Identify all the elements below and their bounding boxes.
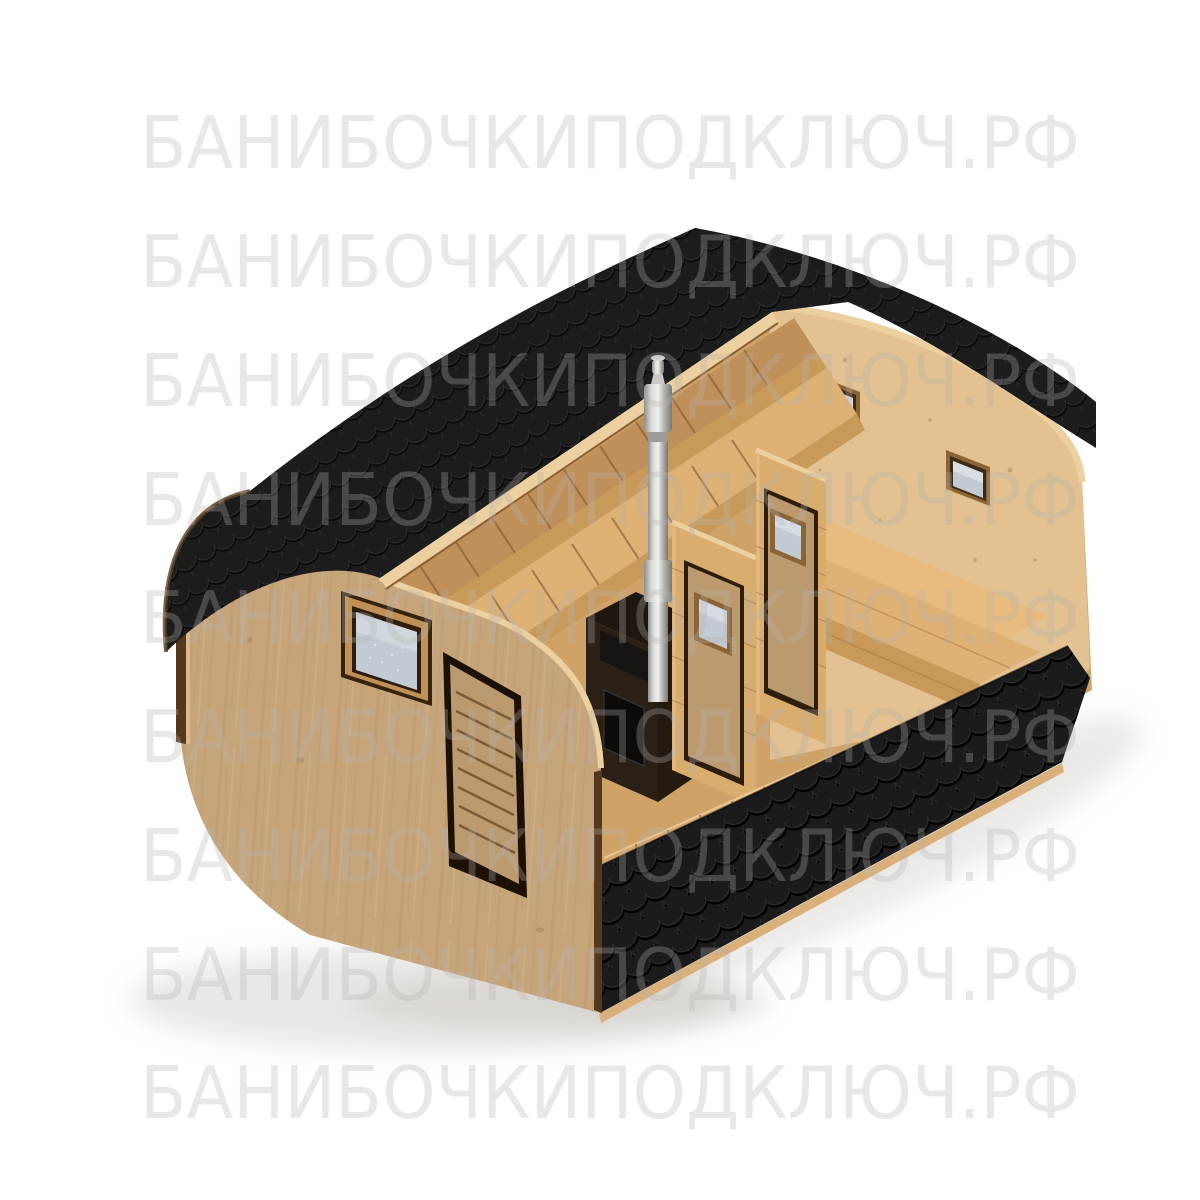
sauna-product-render: БАНИБОЧКИПОДКЛЮЧ.РФБАНИБОЧКИПОДКЛЮЧ.РФБА…	[0, 0, 1200, 1200]
watermark-row: БАНИБОЧКИПОДКЛЮЧ.РФ	[140, 933, 1080, 1017]
watermark-row: БАНИБОЧКИПОДКЛЮЧ.РФ	[140, 695, 1080, 779]
watermark-row: БАНИБОЧКИПОДКЛЮЧ.РФ	[140, 458, 1080, 542]
watermark-row: БАНИБОЧКИПОДКЛЮЧ.РФ	[140, 1051, 1080, 1135]
render-canvas: БАНИБОЧКИПОДКЛЮЧ.РФБАНИБОЧКИПОДКЛЮЧ.РФБА…	[0, 0, 1200, 1200]
watermark-row: БАНИБОЧКИПОДКЛЮЧ.РФ	[140, 101, 1080, 185]
watermark-row: БАНИБОЧКИПОДКЛЮЧ.РФ	[140, 220, 1080, 304]
watermark: БАНИБОЧКИПОДКЛЮЧ.РФБАНИБОЧКИПОДКЛЮЧ.РФБА…	[140, 101, 1080, 1135]
watermark-row: БАНИБОЧКИПОДКЛЮЧ.РФ	[140, 576, 1080, 660]
watermark-row: БАНИБОЧКИПОДКЛЮЧ.РФ	[140, 339, 1080, 423]
watermark-row: БАНИБОЧКИПОДКЛЮЧ.РФ	[140, 814, 1080, 898]
